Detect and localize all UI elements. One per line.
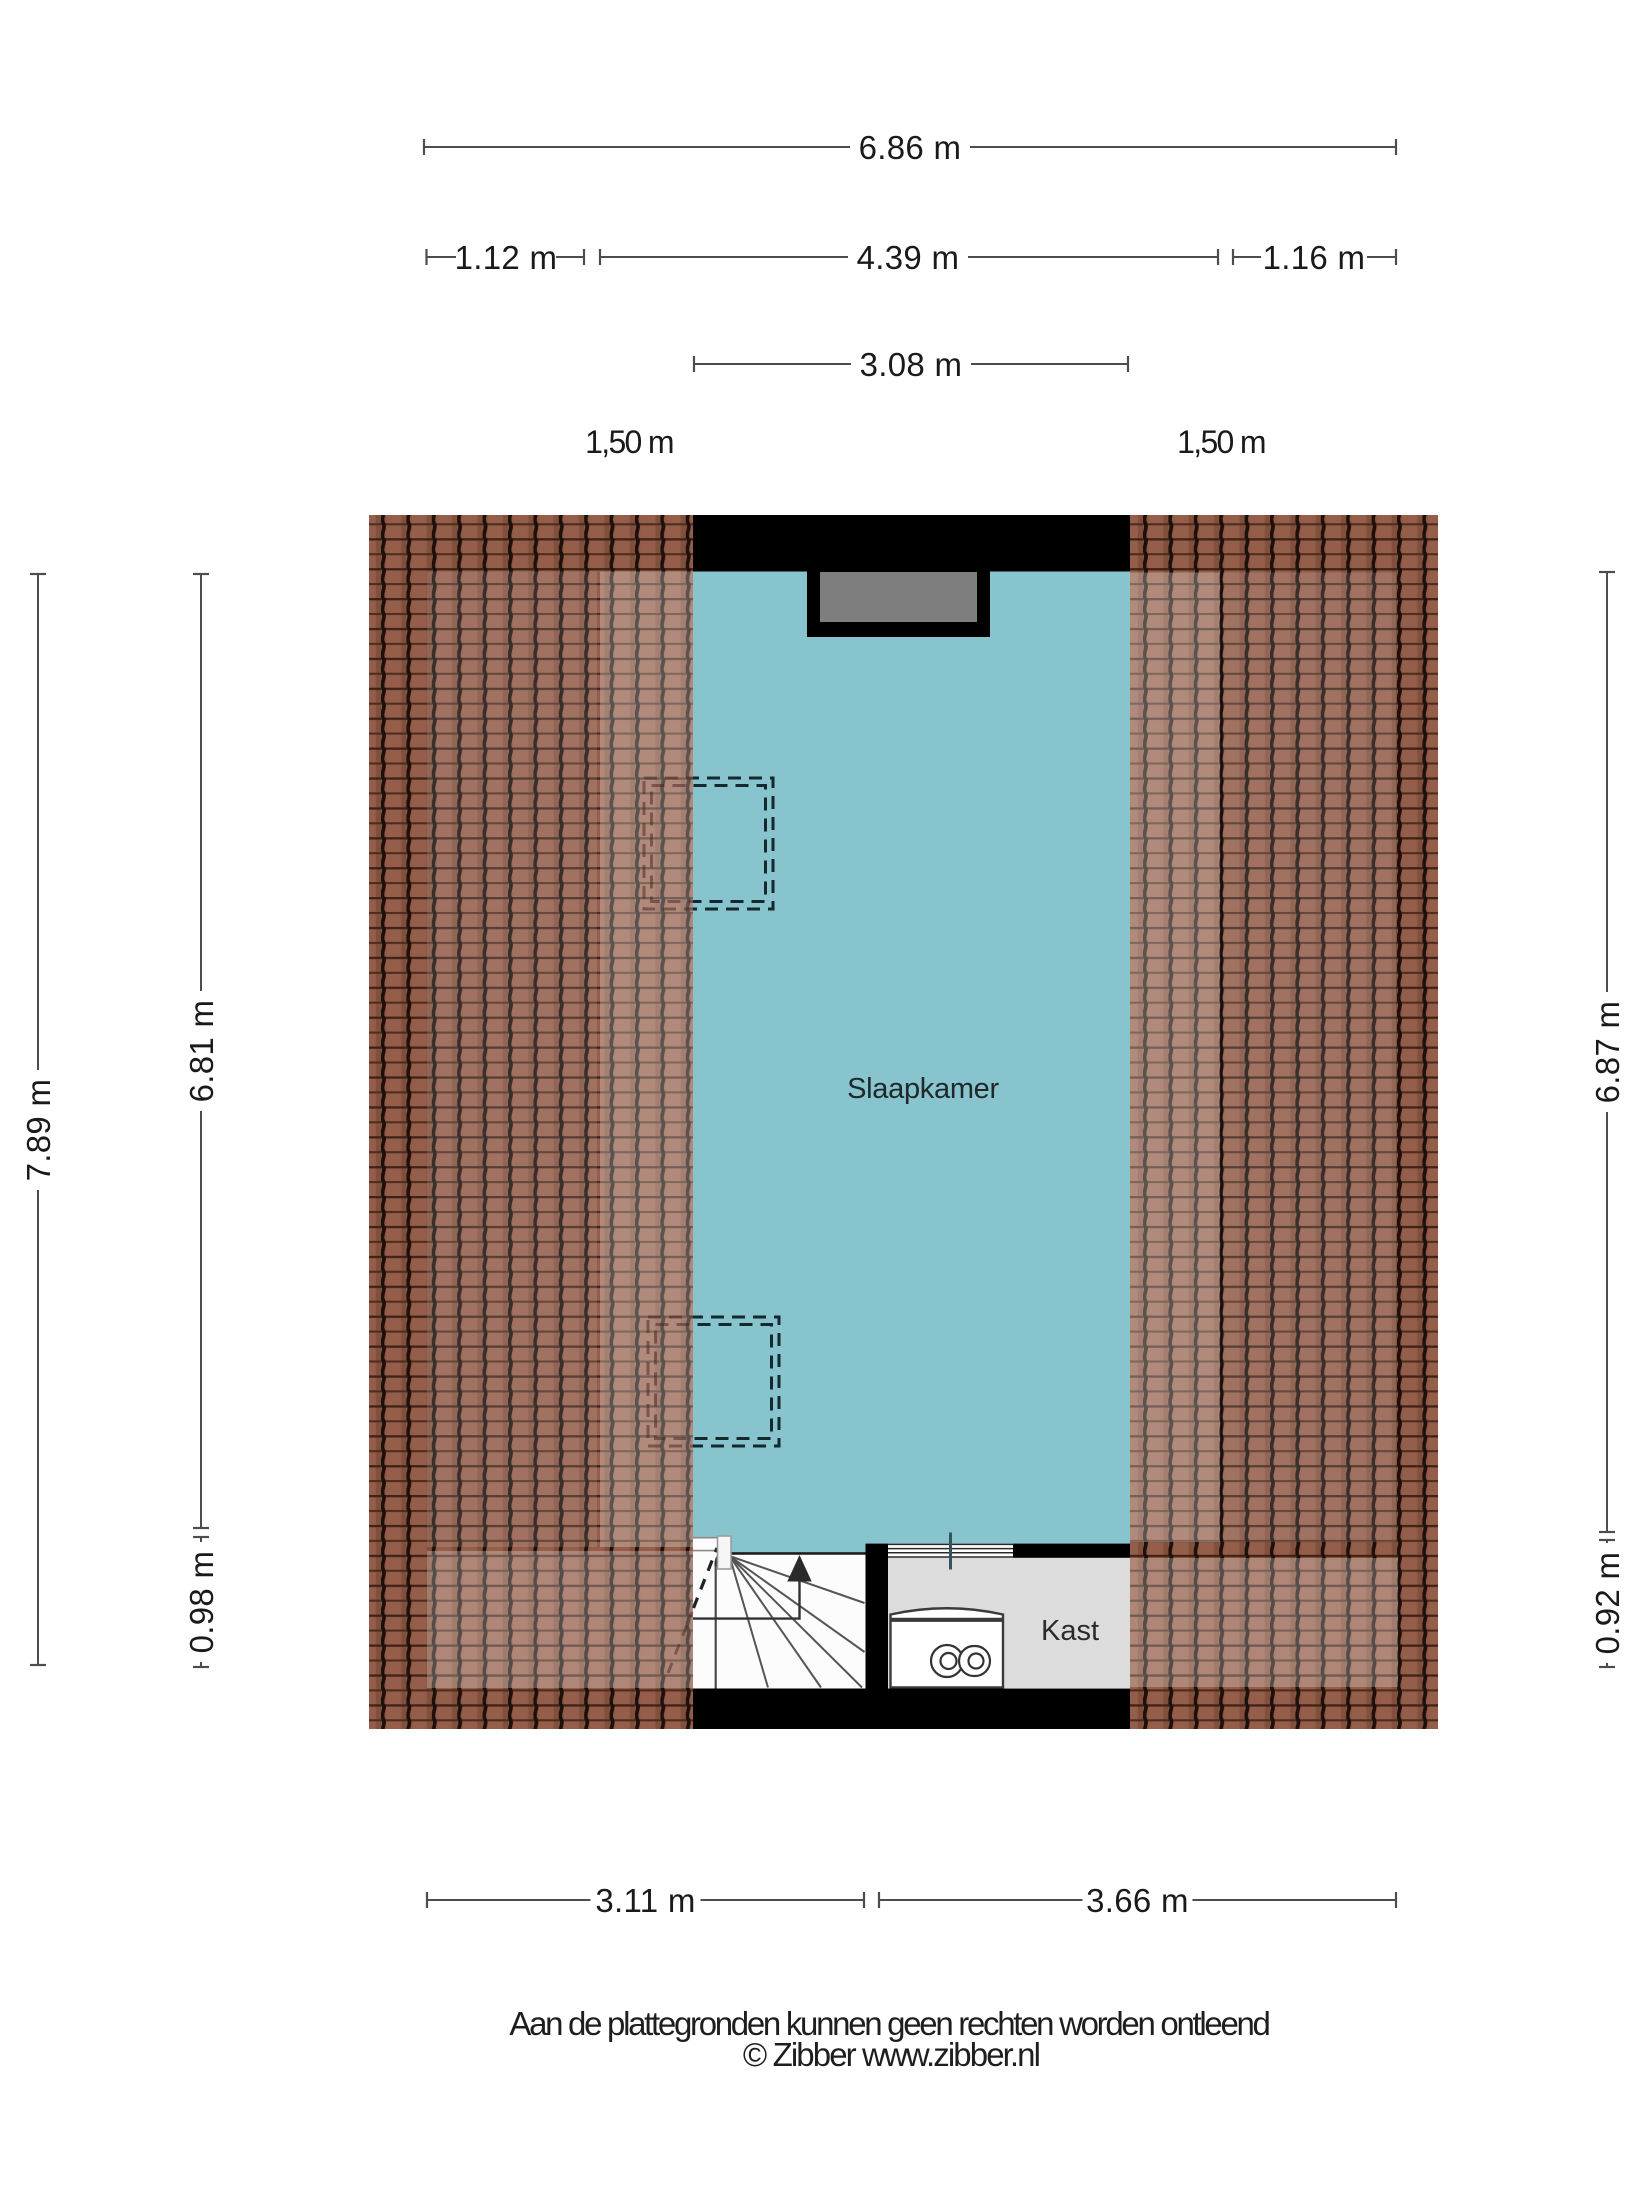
svg-text:3.11 m: 3.11 m [595, 1882, 695, 1919]
svg-text:1,50 m: 1,50 m [1177, 424, 1265, 460]
svg-text:Slaapkamer: Slaapkamer [847, 1073, 999, 1105]
svg-text:1.16 m: 1.16 m [1263, 239, 1366, 276]
svg-text:Kast: Kast [1041, 1615, 1099, 1647]
svg-text:0.98 m: 0.98 m [183, 1551, 220, 1654]
svg-text:1.12 m: 1.12 m [455, 239, 558, 276]
svg-text:1,50 m: 1,50 m [585, 424, 673, 460]
svg-text:6.81 m: 6.81 m [183, 1000, 220, 1103]
svg-text:© Zibber www.zibber.nl: © Zibber www.zibber.nl [743, 2036, 1040, 2073]
svg-text:7.89 m: 7.89 m [20, 1079, 57, 1182]
svg-text:6.87 m: 6.87 m [1589, 1001, 1626, 1104]
svg-text:4.39 m: 4.39 m [857, 239, 960, 276]
svg-text:0.92 m: 0.92 m [1589, 1552, 1626, 1655]
svg-text:3.66 m: 3.66 m [1086, 1882, 1189, 1919]
svg-text:6.86 m: 6.86 m [859, 129, 962, 166]
svg-text:3.08 m: 3.08 m [860, 346, 963, 383]
